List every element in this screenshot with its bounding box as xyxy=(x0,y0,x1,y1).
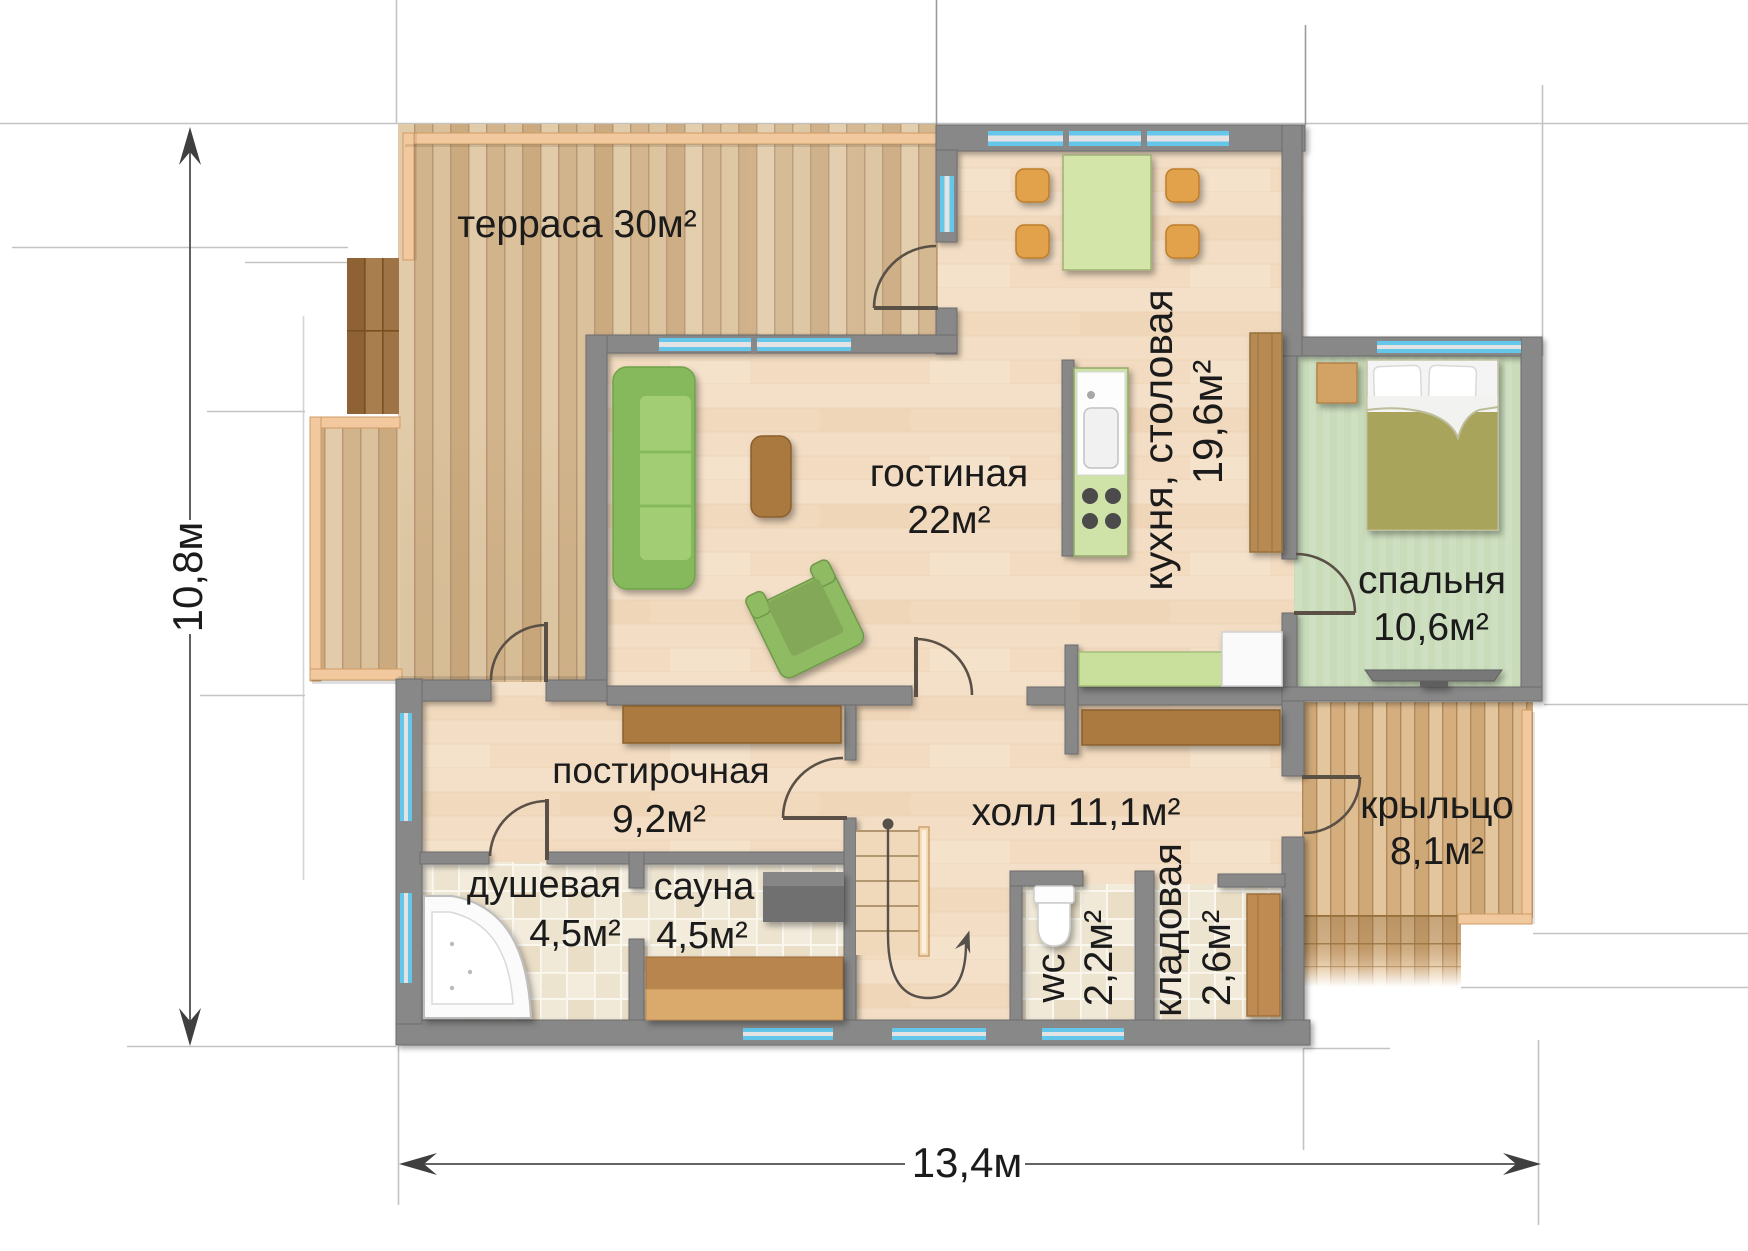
svg-text:13,4м: 13,4м xyxy=(912,1139,1023,1186)
svg-text:кладовая: кладовая xyxy=(1146,843,1190,1017)
svg-text:крыльцо: крыльцо xyxy=(1360,784,1513,827)
svg-text:22м²: 22м² xyxy=(907,499,990,542)
svg-text:гостиная: гостиная xyxy=(870,452,1029,495)
svg-text:холл 11,1м²: холл 11,1м² xyxy=(971,791,1180,834)
svg-text:10,8м: 10,8м xyxy=(164,522,211,633)
svg-text:wc: wc xyxy=(1029,954,1073,1004)
svg-text:9,2м²: 9,2м² xyxy=(612,798,706,841)
svg-text:спальня: спальня xyxy=(1358,559,1506,602)
svg-text:терраса 30м²: терраса 30м² xyxy=(457,203,696,246)
svg-text:постирочная: постирочная xyxy=(552,750,769,791)
svg-text:19,6м²: 19,6м² xyxy=(1184,360,1231,485)
svg-text:душевая: душевая xyxy=(467,864,621,906)
svg-text:2,6м²: 2,6м² xyxy=(1195,910,1239,1006)
svg-text:10,6м²: 10,6м² xyxy=(1373,606,1489,649)
svg-text:4,5м²: 4,5м² xyxy=(529,913,621,955)
svg-text:сауна: сауна xyxy=(654,866,756,908)
svg-text:2,2м²: 2,2м² xyxy=(1077,910,1121,1006)
svg-text:8,1м²: 8,1м² xyxy=(1390,830,1484,873)
svg-text:кухня, столовая: кухня, столовая xyxy=(1135,289,1181,590)
svg-text:4,5м²: 4,5м² xyxy=(656,915,748,957)
